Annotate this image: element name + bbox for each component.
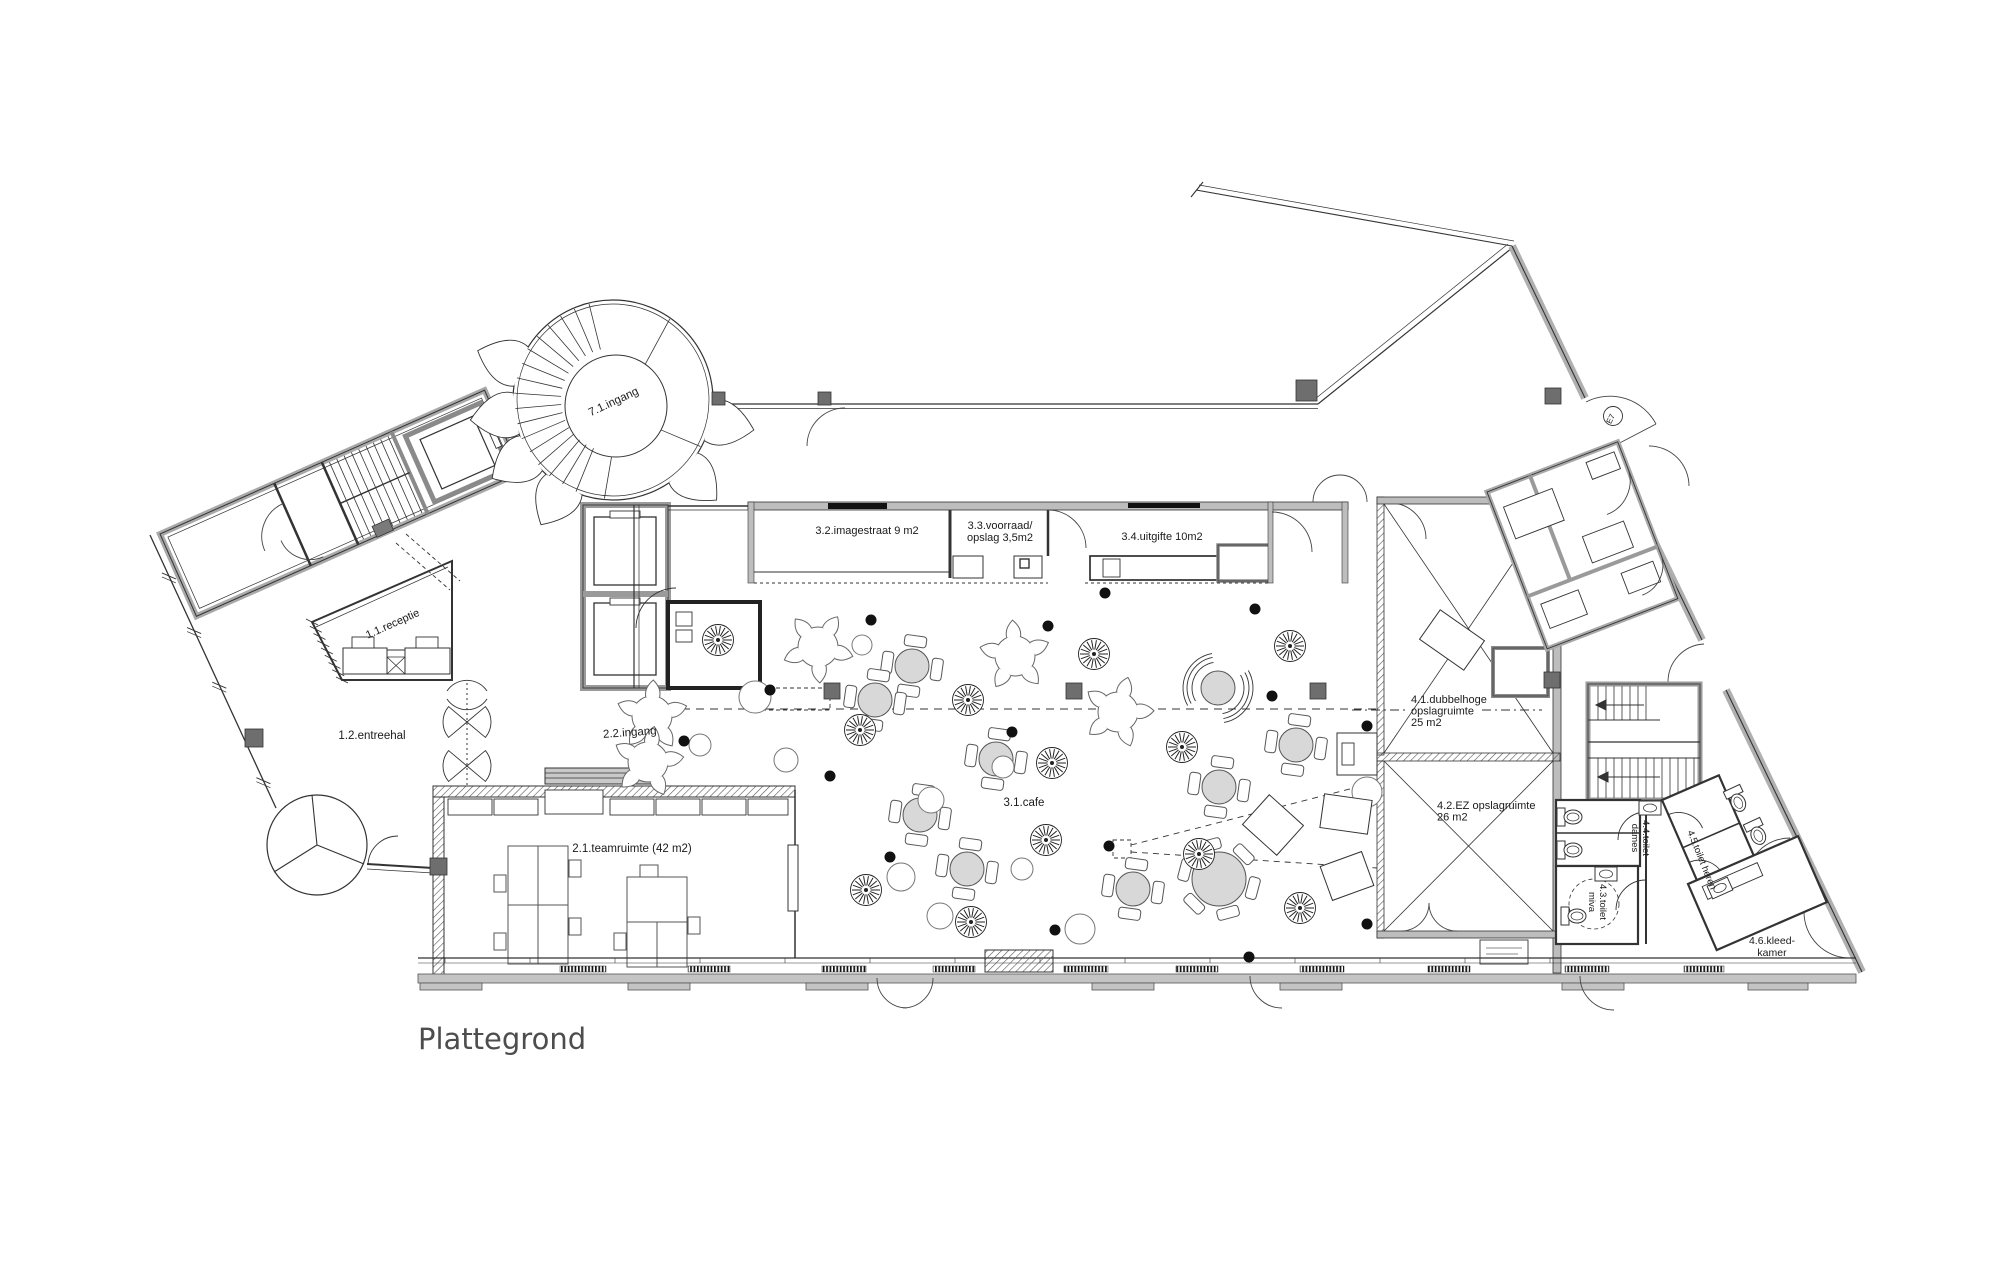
cafe-chair [1125,857,1148,871]
column-dot [1244,952,1255,963]
column-dot [765,685,776,696]
plinth-notch [806,983,868,990]
column-dot [1362,721,1373,732]
stool [774,748,798,772]
room-44-toilet-dames-label: 4.4.toiletdames [1629,820,1651,856]
worktop-note [1480,940,1528,964]
structural-column [712,392,725,405]
stool [1011,858,1033,880]
rattan-chair [1184,839,1215,870]
room-31-cafe-label: 3.1.cafe [1004,797,1045,809]
cafe-chair [959,837,982,851]
structural-column [1310,683,1326,699]
rattan-chair [1031,825,1062,856]
structural-column [245,729,263,747]
receptie-printer [387,650,405,674]
radiator-strip [1300,966,1344,972]
radiator-strip [1064,966,1108,972]
rattan-chair [1275,631,1306,662]
cafe-chair [981,777,1004,791]
column-dot [1050,925,1061,936]
voorraad-fixture [953,556,983,578]
structural-column [1066,683,1082,699]
cafe-chair [1187,772,1201,795]
plinth-notch [1562,983,1624,990]
column-dot [885,852,896,863]
sink-icon [1595,867,1617,881]
cafe-chair [893,692,907,715]
page-title: Plattegrond [418,1022,586,1056]
floorplan-canvas: 7.1.ingang1.1.receptie1.2.entreehal2.2.i… [0,0,2000,1279]
radiator-strip [1176,966,1218,972]
column-dot [1104,841,1115,852]
rattan-chair [1037,748,1068,779]
room-21-teamruimte-label: 2.1.teamruimte (42 m2) [572,843,692,855]
cafe-chair [964,744,978,767]
cafe-chair [1118,907,1141,921]
stool [689,734,711,756]
cafe-chair [985,861,999,884]
radiator-strip [1428,966,1470,972]
radiator-strip [1684,966,1724,972]
cafe-chair [1237,779,1251,802]
cafe-chair [1288,713,1311,727]
cafe-chair [1281,763,1304,777]
receptie-desk-1 [343,648,387,674]
wall-cabinet-2 [1128,503,1200,508]
column-dot [866,615,877,626]
rattan-chair [851,875,882,906]
cafe-chair [1014,751,1028,774]
cafe-chair [1264,730,1278,753]
east-stairwell [1588,684,1700,800]
structural-column [824,683,840,699]
structural-column [818,392,831,405]
cafe-chair [843,685,857,708]
elevator-tower [583,505,668,688]
shaft-room [1493,648,1548,696]
cafe-chair [1204,805,1227,819]
stool [992,756,1014,778]
stool [739,681,771,713]
floorplan-page: 7.1.ingang1.1.receptie1.2.entreehal2.2.i… [0,0,2000,1279]
radiator-strip [688,966,730,972]
stool [927,903,953,929]
column-dot [1100,588,1111,599]
cafe-chair [1151,881,1165,904]
plinth-notch [420,983,482,990]
column-dot [825,771,836,782]
column-dot [1362,919,1373,930]
plinth-notch [1280,983,1342,990]
movable-furniture [1320,794,1372,834]
radiator-strip [933,966,975,972]
plinth-notch [628,983,690,990]
cafe-chair [952,887,975,901]
rattan-chair [1167,732,1198,763]
hatch-bench [985,950,1053,972]
uitgifte-pass [1218,545,1270,581]
cafe-chair [930,658,944,681]
rattan-chair [845,715,876,746]
structural-column [1296,380,1317,401]
lectern [1337,733,1377,775]
desk-cluster-2 [614,865,700,967]
rattan-chair [1285,893,1316,924]
rattan-chair [953,685,984,716]
stool [852,635,872,655]
receptie-desk-2 [405,648,450,674]
column-dot [1043,621,1054,632]
room-12-entreehal-label: 1.2.entreehal [338,730,405,742]
plinth-notch [1092,983,1154,990]
structural-column [430,858,447,875]
column-dot [1007,727,1018,738]
column-dot [679,736,690,747]
stool [918,787,944,813]
room-32-imagestraat-label: 3.2.imagestraat 9 m2 [815,525,918,537]
cafe-chair [1314,737,1328,760]
radiator-strip [560,966,606,972]
cafe-chair [1101,874,1115,897]
rattan-chair [1079,639,1110,670]
cafe-chair [904,634,927,648]
wall-cabinet-1 [828,503,887,509]
column-dot [1250,604,1261,615]
cafe-chair [867,668,890,682]
rattan-chair [703,625,734,656]
column-dot [1267,691,1278,702]
cafe-chair [935,854,949,877]
room-34-uitgifte-label: 3.4.uitgifte 10m2 [1121,531,1202,543]
room-33-voorraad-label: 3.3.voorraad/opslag 3,5m2 [967,520,1033,544]
elevator-car-1 [594,517,656,585]
cafe-chair [1211,755,1234,769]
cafe-chair [905,833,928,847]
structural-column [1545,388,1561,404]
structural-column [1544,672,1560,688]
sink-icon [1639,801,1661,815]
stool [887,863,915,891]
stool [1065,914,1095,944]
radiator-strip [822,966,866,972]
elevator-car-2 [594,603,656,675]
rattan-chair [956,907,987,938]
radiator-strip [1565,966,1609,972]
cafe-chair [938,807,952,830]
plinth-notch [1748,983,1808,990]
cafe-chair [888,800,902,823]
